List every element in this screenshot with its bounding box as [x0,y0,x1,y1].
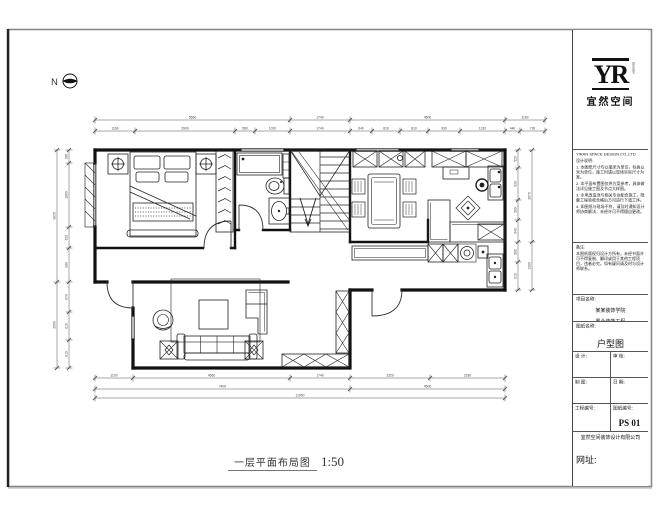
company-name-en: YIRAN SPACE DESIGN CO.,LTD [576,152,645,157]
back-door-icon [372,290,402,316]
dim-label: 520 [514,156,518,162]
dim-row-top_inner: 1160290058010201740640810810930131044073… [93,127,547,135]
dim-label: 810 [65,323,69,329]
project-cell: 项目名称: 某某装饰学院 置业装饰工程 [573,295,648,322]
dim-label: 5660 [189,116,197,120]
plant-table-icon [160,341,178,359]
dim-label: 3830 [53,212,57,220]
tv-cabinet-x-icon [282,291,349,367]
drawing-name-cell: 图纸名称: 户型图 [573,322,648,352]
double-bed-icon [127,152,198,237]
dim-label: 4560 [208,374,216,378]
project-no-label: 工程编号: [575,405,608,411]
dim-row-bottom_1: 11004560174023202180 [93,374,507,382]
dim-label: 1160 [111,127,118,131]
remark-header: 备注: [576,245,645,250]
kitchen-peninsula-icon [428,200,505,242]
remark-cell: 备注: 本图纸版权归设计方所有，未经书面许可不得复制、翻印或用于其他工程项目，违… [573,243,648,295]
dim-label: 930 [514,181,518,187]
tub-chair-icon [153,310,173,330]
design-notes: 1. 本图纸尺寸均以毫米为单位，标高以米为单位，施工时请以现场实际尺寸为准。2.… [576,165,645,215]
dim-label: 1860 [65,191,69,199]
bath-door-icon [239,205,263,230]
dim-label: 1390 [528,262,532,270]
cabinet-x-icon [353,151,425,167]
dim-label: 870 [65,294,69,300]
dim-label: 1160 [521,116,528,120]
dining-chair-icon [352,179,416,217]
dim-label: 1740 [316,116,324,120]
project-line-1: 某某装饰学院 [576,307,645,314]
chaise-icon [246,290,267,334]
dim-row-bottom_2: 74004500 [93,385,507,393]
dim-label: 810 [411,127,417,131]
rug-icon [171,279,260,342]
notes-header: 设计说明: [576,159,645,164]
nightstand-lamp-icon [108,154,128,174]
dim-row-left_inner: 3801860610990870810810 [65,148,73,370]
dim-row-left_outer: 38302500 [53,148,61,370]
sheet-border [8,29,652,488]
company-logo: YR DESIGN [592,58,630,90]
dim-label: 2320 [386,374,394,378]
dim-label: 1100 [110,374,117,378]
exterior-walls [95,150,505,368]
drafter-label: 制 图: [575,379,608,385]
dim-row-top_outer: 5660174045001160 [93,116,547,124]
north-arrow-icon: N [51,74,78,88]
windows [85,149,480,340]
dimension-lines: 5660174045001160116029005801020174064081… [53,116,547,402]
remark-text: 本图纸版权归设计方所有，未经书面许可不得复制、翻印或用于其他工程项目，违者必究。… [576,252,645,272]
toilet-icon [266,178,289,194]
counter-cabinet-icon [352,244,458,262]
sheet-title-text: 一层平面布局图 [228,458,317,471]
dim-label: 380 [65,154,69,160]
logo-side-text: DESIGN [632,62,636,74]
shower-tub-icon [237,153,282,175]
dim-label: 730 [530,127,536,131]
dim-label: 810 [65,351,69,357]
drawing-sheet: N [0,0,660,528]
sheet-scale: 1:50 [321,454,344,469]
nightstand-lamp-icon [196,154,216,174]
dim-label: 2900 [181,127,189,131]
logo-text: YR [592,58,630,90]
design-note: 2. 本平面布置图仅供方案参考，具体做法详见施工图及节点大样图。 [576,182,645,192]
website-label: 网址: [576,453,645,466]
dim-label: 7400 [219,385,227,389]
signature-grid: 设 计: 审 核: 制 图: 日 期: 工程编号: 图纸编号: PS 01 [573,352,648,432]
dim-label: 4500 [424,116,432,120]
dim-label: 11900 [296,394,305,398]
dining-table-icon [368,174,400,228]
washing-machine-icon [458,244,476,262]
footer-company-line: 宜然空间装饰设计有限公司 [576,434,645,441]
dim-row-right_outer: 26701390 [528,148,536,292]
dim-row-bottom_3: 11900 [93,394,507,402]
dim-label: 580 [514,249,518,255]
dim-label: 930 [441,127,447,131]
dim-label: 640 [514,228,518,234]
dim-label: 4500 [424,385,432,389]
small-appliance-icon [478,246,488,258]
kitchen-cabinet-x-icon [432,151,502,179]
plant-table-icon [245,341,263,359]
entry-door-icon [107,282,133,308]
dim-row-right_inner: 520930580640580810 [514,148,522,292]
dim-label: 810 [383,127,389,131]
dim-label: 2670 [528,192,532,200]
drawing-name: 户型图 [576,337,645,350]
drawing-name-label: 图纸名称: [576,323,645,329]
company-name-cn: 宜然空间 [573,93,648,108]
dim-label: 2180 [464,374,472,378]
design-note: 4. 如图纸与现场不符，请及时通知设计师协商解决，未经许可不得擅自更改。 [576,205,645,215]
wash-basin-icon [269,198,290,224]
dim-label: 1020 [269,127,277,131]
dim-label: 610 [65,235,69,241]
dim-label: 1740 [316,374,324,378]
north-label: N [51,77,58,88]
bath-shelf-icon [283,154,289,178]
dim-label: 810 [514,273,518,279]
dim-label: 640 [358,127,364,131]
design-note: 3. 水电改造须与相关专业配合施工，隐蔽工程验收合格后方可进行下道工序。 [576,193,645,203]
sheet-title: 一层平面布局图1:50 [0,453,572,471]
dim-label: 580 [514,207,518,213]
design-note: 1. 本图纸尺寸均以毫米为单位，标高以米为单位，施工时请以现场实际尺寸为准。 [576,165,645,180]
wardrobe-hangers-icon [216,151,233,232]
kitchen-sink-icon [488,166,503,200]
logo-cell: YR DESIGN 宜然空间 [573,30,648,150]
dim-label: 1740 [316,127,324,131]
doors [107,205,402,316]
bedroom-door-icon [204,221,231,248]
design-notes-cell: YIRAN SPACE DESIGN CO.,LTD 设计说明: 1. 本图纸尺… [573,150,648,243]
designer-label: 设 计: [575,353,608,359]
dim-label: 440 [510,127,516,131]
floor-medallion-icon [456,196,480,220]
floorplan-canvas: N [0,0,660,528]
title-block: YR DESIGN 宜然空间 YIRAN SPACE DESIGN CO.,LT… [572,30,648,486]
dim-label: 580 [242,127,248,131]
sheet-number: PS 01 [613,418,646,428]
dim-label: 1310 [479,127,487,131]
footer-cell: 宜然空间装饰设计有限公司 网址: [573,432,648,486]
dim-label: 990 [65,262,69,268]
sheet-no-label: 图纸编号: [613,405,646,411]
gas-burner-icon [476,179,488,191]
dim-label: 2500 [53,321,57,329]
project-label: 项目名称: [576,296,645,302]
bay-window [85,163,96,227]
stair-run-icon [290,150,350,232]
coffee-table-icon [199,300,228,329]
checker-label: 审 核: [613,353,646,359]
date-label: 日 期: [613,379,646,385]
laundry-sink-icon [487,254,503,287]
